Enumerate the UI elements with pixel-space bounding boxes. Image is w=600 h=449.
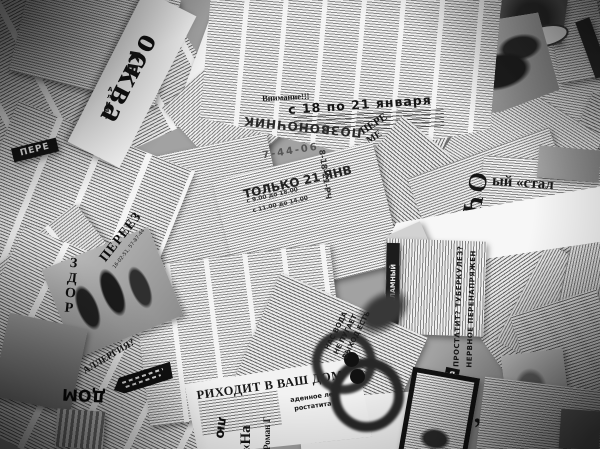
rotated-label-lyu: лю [212,416,230,440]
vertical-byline-roman: Роман Г [262,402,272,449]
newspaper-collage-photo: речи Внимание!!! с 18 по 21 января ПОЗВО… [0,0,600,449]
photo-fragment-dark [559,409,600,449]
headline-dom-upside-down: ДОМ [62,385,107,406]
vertical-headline: НЕРВНОЕ ПЕРЕНАПРЯЖЕН [465,250,477,368]
vertical-headline-block: ПРОСТАТИТ? ТУБЕРКУЛЕЗ? НЕРВНОЕ ПЕРЕНАПРЯ… [453,246,482,339]
framed-ad-box [398,367,480,449]
corrugated-texture [55,408,106,449]
vertical-title-na: «На [238,410,255,449]
black-circle-badge [350,369,365,384]
